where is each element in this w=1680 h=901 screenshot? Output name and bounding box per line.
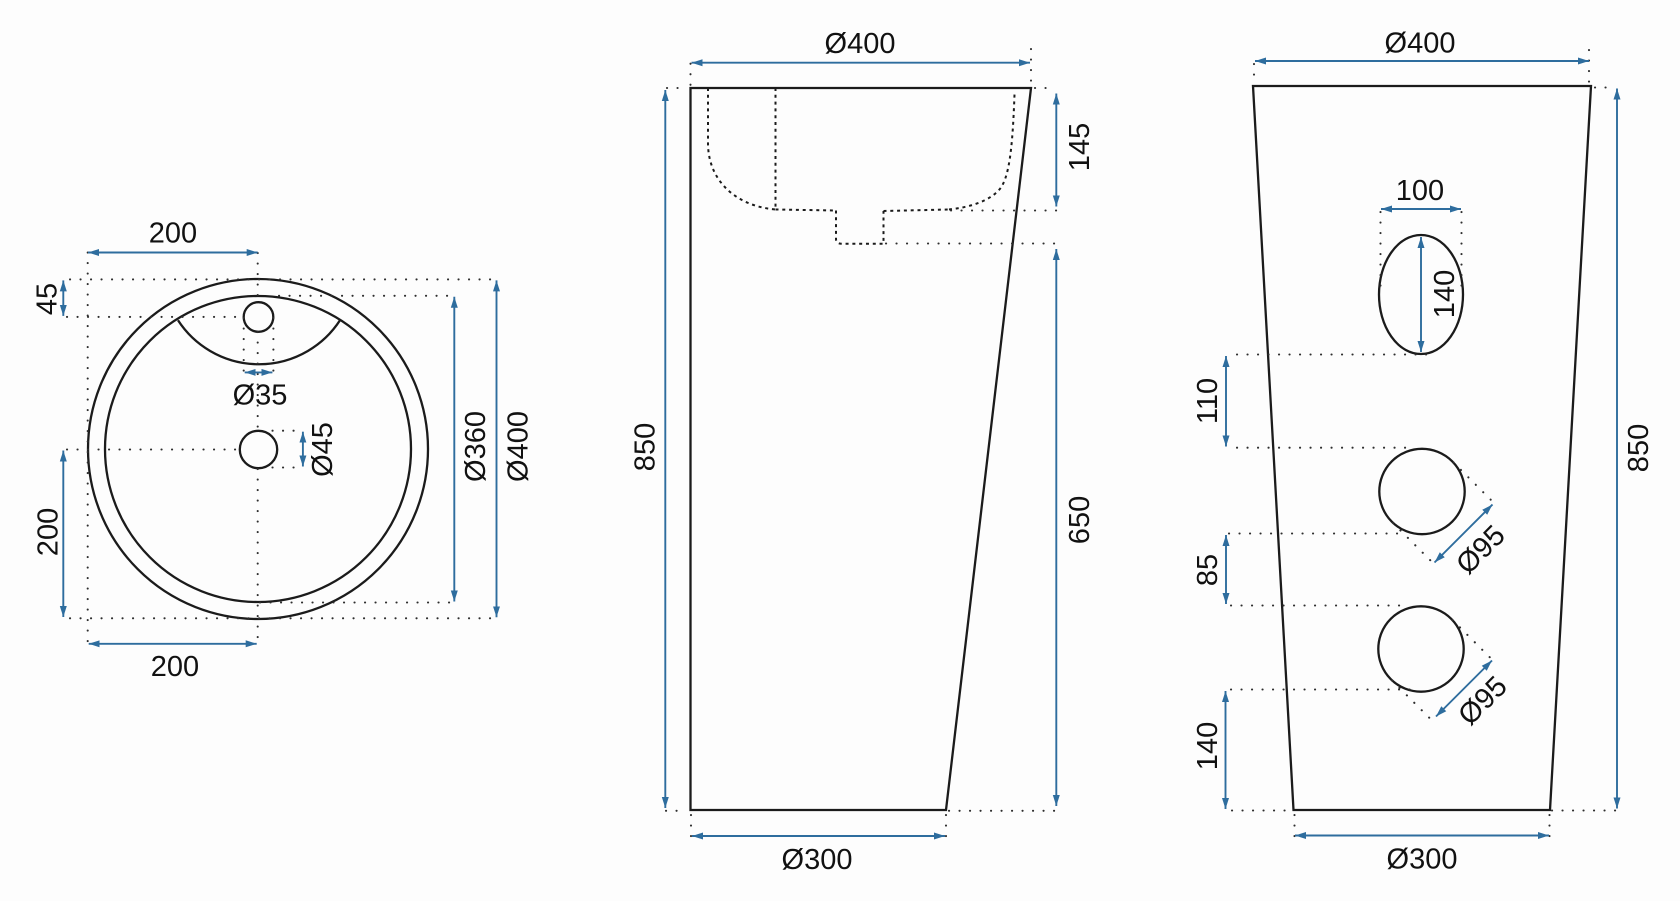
svg-text:Ø360: Ø360 xyxy=(460,411,492,482)
svg-text:110: 110 xyxy=(1192,378,1224,424)
svg-text:100: 100 xyxy=(1396,175,1444,207)
svg-text:145: 145 xyxy=(1064,123,1096,171)
svg-text:200: 200 xyxy=(149,218,197,250)
svg-text:Ø300: Ø300 xyxy=(782,844,853,876)
svg-text:Ø300: Ø300 xyxy=(1387,844,1458,876)
svg-text:Ø45: Ø45 xyxy=(307,422,339,477)
svg-text:Ø35: Ø35 xyxy=(233,380,288,412)
svg-text:140: 140 xyxy=(1192,722,1224,770)
svg-text:200: 200 xyxy=(33,508,65,556)
svg-text:45: 45 xyxy=(32,283,64,315)
svg-text:200: 200 xyxy=(151,651,199,683)
svg-text:850: 850 xyxy=(630,423,662,471)
svg-text:650: 650 xyxy=(1064,496,1096,544)
svg-text:Ø400: Ø400 xyxy=(503,411,535,482)
svg-text:850: 850 xyxy=(1623,424,1655,472)
svg-text:Ø400: Ø400 xyxy=(825,28,896,60)
svg-text:85: 85 xyxy=(1192,554,1224,586)
svg-text:140: 140 xyxy=(1429,270,1461,318)
svg-text:Ø400: Ø400 xyxy=(1385,28,1456,60)
